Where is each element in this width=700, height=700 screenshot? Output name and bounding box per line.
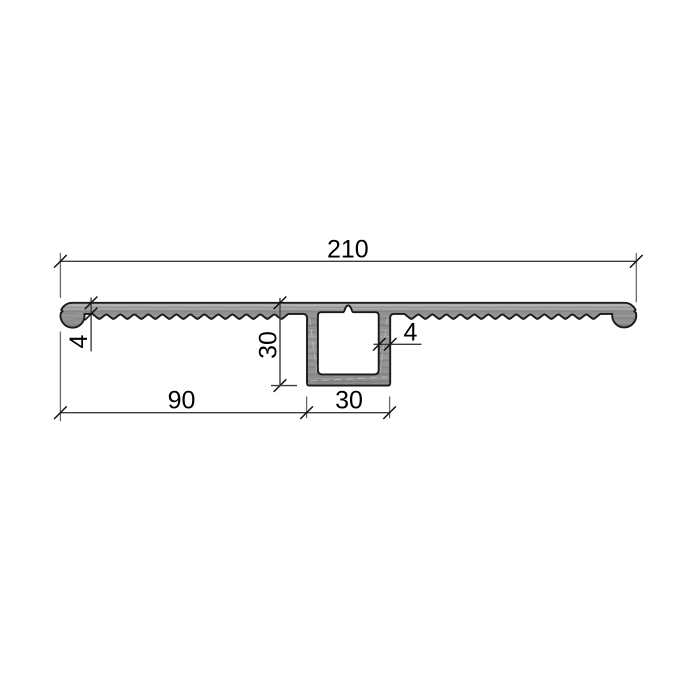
svg-text:30: 30 xyxy=(254,331,282,359)
svg-text:4: 4 xyxy=(65,334,93,348)
svg-text:210: 210 xyxy=(327,236,369,264)
svg-text:30: 30 xyxy=(335,387,363,415)
svg-text:4: 4 xyxy=(404,319,418,347)
svg-text:90: 90 xyxy=(168,387,196,415)
